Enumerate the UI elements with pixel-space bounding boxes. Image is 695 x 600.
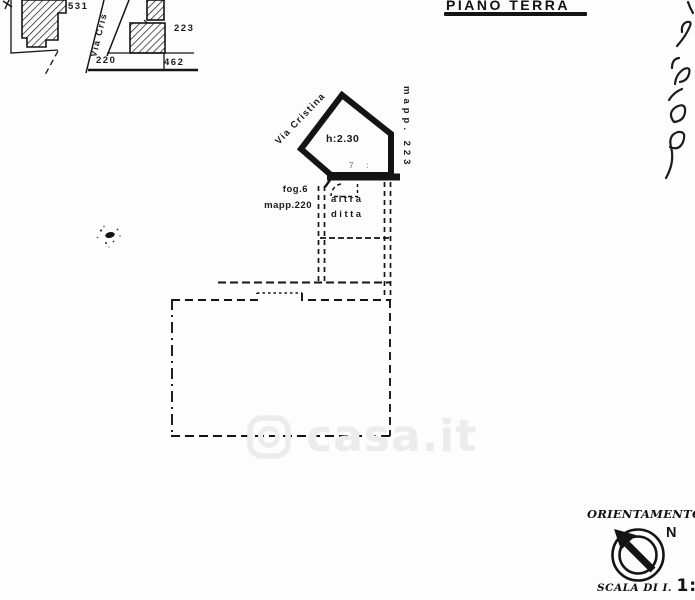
neighbor-owner-label-line2: ditta xyxy=(331,209,364,220)
sheet-number-label: fog.6 xyxy=(250,184,308,195)
scanned-floor-plan-page: 531 223 220 462 Via Cris PIANO TERRA xyxy=(0,0,695,600)
parcel-number-label: mapp.220 xyxy=(246,200,312,211)
parcel-right-label: mapp. 223 xyxy=(401,86,412,168)
scale-prefix: SCALA DI I. xyxy=(597,582,672,594)
ink-blot xyxy=(97,226,121,248)
room-height-label: h:2.30 xyxy=(326,133,359,145)
watermark-logo-icon xyxy=(246,414,292,460)
boundary-rect-top-left xyxy=(172,293,257,300)
pencil-mark: : xyxy=(366,160,369,170)
pencil-mark: 7 xyxy=(349,160,354,170)
watermark-text: casa.it xyxy=(306,414,477,460)
scale-value: 1:20 xyxy=(676,576,695,596)
orientation-label: ORIENTAMENTO xyxy=(587,507,695,521)
watermark: casa.it xyxy=(246,414,477,460)
north-label: N xyxy=(666,525,676,541)
wall-corner-foot xyxy=(325,180,330,187)
boundary-rect-top-right xyxy=(302,293,390,300)
neighbor-owner-label-line1: altra xyxy=(331,194,364,205)
handwritten-note xyxy=(652,0,695,195)
scale-note: SCALA DI I. 1:20 xyxy=(597,576,695,596)
